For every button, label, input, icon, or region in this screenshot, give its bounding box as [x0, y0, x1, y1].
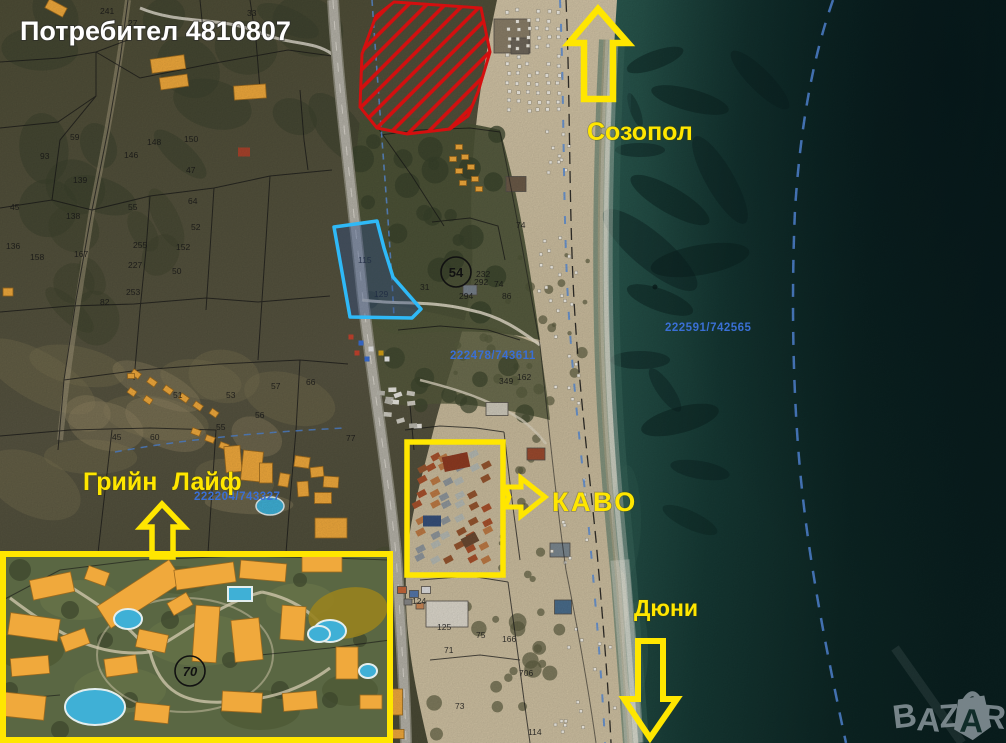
- resort-tree: [322, 692, 338, 708]
- green-life-label: Грийн Лайф: [83, 468, 242, 496]
- parcel-number: 125: [437, 622, 451, 632]
- parcel-number: 55: [216, 422, 226, 432]
- parcel-number: 50: [172, 266, 182, 276]
- dyuni-label: Дюни: [634, 595, 698, 621]
- parcel-number: 74: [516, 220, 526, 230]
- parcel-number: 136: [6, 241, 20, 251]
- parcel-number: 52: [191, 222, 201, 232]
- parcel-number: 294: [459, 291, 473, 301]
- resort-tree: [61, 601, 79, 619]
- parcel-number: 706: [519, 668, 533, 678]
- kavo-label: КАВО: [552, 487, 638, 517]
- parcel-number: 66: [306, 377, 316, 387]
- parcel-number: 255: [133, 240, 147, 250]
- parcel-number: 349: [499, 376, 513, 386]
- sozopol-label: Созопол: [587, 118, 693, 146]
- parcel-number: 148: [147, 137, 161, 147]
- resort-building: [192, 605, 220, 663]
- parcel-number: 86: [502, 291, 512, 301]
- resort-building: [280, 605, 306, 641]
- coordinate-label-2: 222478/743611: [450, 350, 536, 362]
- parcel-number: 47: [186, 165, 196, 175]
- parcel-number: 146: [124, 150, 138, 160]
- parcel-number: 227: [128, 260, 142, 270]
- parcel-number: 75: [476, 630, 486, 640]
- parcel-number: 167: [74, 249, 88, 259]
- resort-circle-number: 70: [183, 664, 198, 679]
- listing-map-image: 2413327591481501469347139645513852136255…: [0, 0, 1006, 743]
- parcel-number: 57: [271, 381, 281, 391]
- parcel-number: 139: [73, 175, 87, 185]
- parcel-number: 162: [517, 372, 531, 382]
- watermark-letter: R: [981, 697, 1006, 736]
- resort-building: [239, 560, 286, 582]
- parcel-number: 166: [502, 634, 516, 644]
- site-circle-number: 54: [449, 265, 464, 280]
- resort-building: [134, 702, 170, 723]
- resort-building: [336, 647, 358, 679]
- parcel-number: 51: [173, 390, 183, 400]
- resort-building: [360, 695, 382, 709]
- parcel-number: 74: [494, 279, 504, 289]
- parcel-number: 77: [346, 433, 356, 443]
- parcel-number: 124: [412, 596, 426, 606]
- resort-building: [222, 691, 263, 713]
- parcel-number: 150: [184, 134, 198, 144]
- parcel-number: 71: [444, 645, 454, 655]
- swimming-pool: [114, 609, 142, 629]
- resort-building: [104, 655, 138, 677]
- resort-tree: [293, 573, 307, 587]
- parcel-number: 45: [112, 432, 122, 442]
- resort-building: [10, 655, 49, 676]
- parcel-number: 253: [126, 287, 140, 297]
- satellite-map: 2413327591481501469347139645513852136255…: [0, 0, 1006, 743]
- resort-building: [231, 618, 263, 663]
- resort-tree: [9, 559, 31, 581]
- user-id-label: Потребител 4810807: [20, 16, 291, 46]
- parcel-number: 138: [66, 211, 80, 221]
- bazar-watermark-logo: BAZAR: [891, 693, 1006, 740]
- watermark-letter: B: [891, 696, 919, 736]
- resort-building: [302, 556, 342, 572]
- parcel-number: 31: [420, 282, 430, 292]
- resort-building: [0, 692, 46, 721]
- swimming-pool: [65, 689, 125, 725]
- swimming-pool: [228, 587, 252, 601]
- resort-inset: 70: [0, 554, 392, 740]
- parcel-number: 56: [255, 410, 265, 420]
- parcel-number: 292: [474, 277, 488, 287]
- parcel-number: 158: [30, 252, 44, 262]
- parcel-number: 73: [455, 701, 465, 711]
- parcel-number: 152: [176, 242, 190, 252]
- parcel-number: 82: [100, 297, 110, 307]
- parcel-number: 64: [188, 196, 198, 206]
- parcel-number: 45: [10, 202, 20, 212]
- parcel-number: 114: [528, 727, 542, 737]
- parcel-number: 53: [226, 390, 236, 400]
- parcel-number: 59: [70, 132, 80, 142]
- parcel-number: 60: [150, 432, 160, 442]
- parcel-number: 55: [128, 202, 138, 212]
- coordinate-label-1: 222591/742565: [665, 322, 752, 334]
- resort-building: [282, 691, 317, 712]
- parcel-number: 241: [100, 6, 114, 16]
- swimming-pool: [308, 626, 330, 642]
- resort-tree: [51, 721, 69, 739]
- swimming-pool: [359, 664, 377, 678]
- parcel-number: 93: [40, 151, 50, 161]
